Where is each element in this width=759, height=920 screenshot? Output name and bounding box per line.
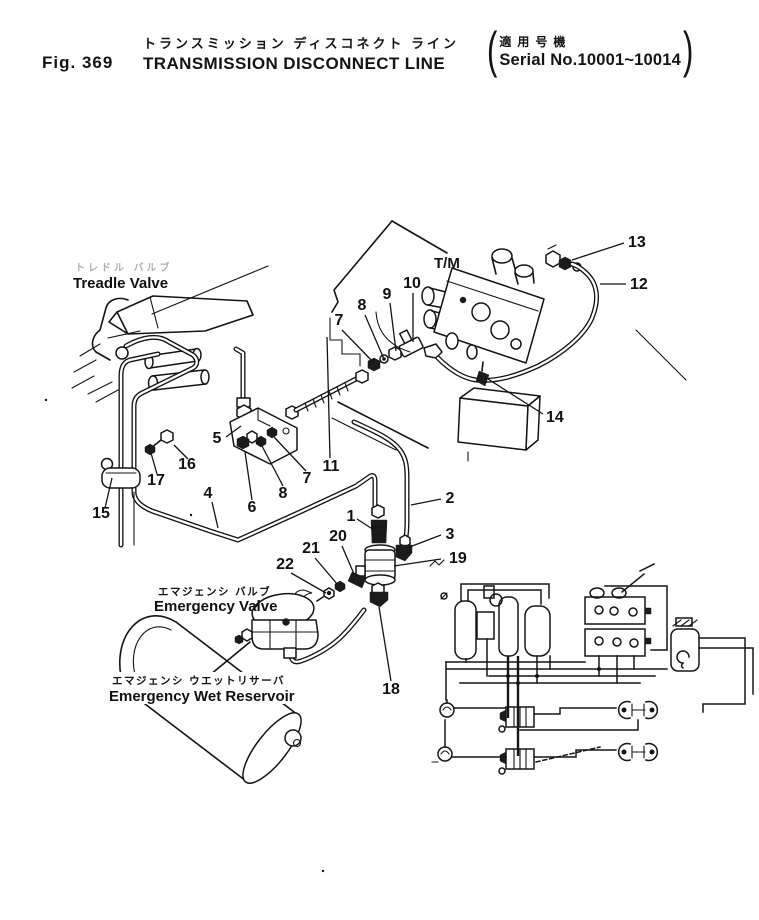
callout-1: 1 <box>347 508 356 525</box>
callout-leader-11 <box>327 337 330 458</box>
valve-19-assembly <box>317 505 412 607</box>
emergency-wet-reservoir-label-jp: エマジェンシ ウエットリサーバ <box>112 675 285 687</box>
callout-8: 8 <box>358 297 367 314</box>
callout-21: 21 <box>302 540 320 557</box>
callout-leader-3 <box>407 535 441 548</box>
tube-11-assembly <box>286 327 442 419</box>
callout-leader-7 <box>342 330 374 363</box>
callout-4: 4 <box>204 485 213 502</box>
callout-15: 15 <box>92 505 110 522</box>
treadle-valve-label: Treadle Valve <box>73 275 168 292</box>
callout-leader-13 <box>572 243 624 260</box>
callout-22: 22 <box>276 556 294 573</box>
callout-leader-20 <box>342 546 354 574</box>
callout-12: 12 <box>630 276 648 293</box>
pneumatic-schematic <box>430 560 753 774</box>
callout-leader-8 <box>365 315 384 359</box>
callout-5: 5 <box>213 430 222 447</box>
callout-leader-2 <box>411 499 441 505</box>
callout-9: 9 <box>383 286 392 303</box>
callout-8: 8 <box>279 485 288 502</box>
pipe-and-fitting-5-core <box>236 349 243 398</box>
tube-11-assembly-core <box>296 379 356 410</box>
treadle-valve-label-jp: トレドル バルブ <box>75 261 172 274</box>
callout-leader-18 <box>379 607 391 681</box>
tm-label: T/M <box>434 255 460 272</box>
callout-7: 7 <box>335 312 344 329</box>
callout-13: 13 <box>628 234 646 251</box>
callout-17: 17 <box>147 472 165 489</box>
callout-14: 14 <box>546 409 564 426</box>
callout-leader-17 <box>151 453 157 474</box>
diagram-canvas: トレドル バルブ Treadle Valve T/M エマジェンシ バルブ Em… <box>0 0 759 920</box>
callout-3: 3 <box>446 526 455 543</box>
callout-11: 11 <box>323 458 340 475</box>
callout-2: 2 <box>446 490 455 507</box>
callout-leader-4 <box>212 502 218 528</box>
emergency-valve-label: Emergency Valve <box>154 598 277 615</box>
callout-18: 18 <box>382 681 400 698</box>
parts-diagram-page: Fig. 369 トランスミッション ディスコネクト ライン TRANSMISS… <box>0 0 759 920</box>
callout-20: 20 <box>329 528 347 545</box>
callout-19: 19 <box>449 550 467 567</box>
callout-leader-21 <box>315 558 338 585</box>
callout-6: 6 <box>248 499 257 516</box>
callout-leader-22 <box>291 573 326 593</box>
emergency-wet-reservoir-label: Emergency Wet Reservoir <box>109 688 295 705</box>
callout-leader-6 <box>245 452 252 500</box>
callout-7: 7 <box>303 470 312 487</box>
callout-16: 16 <box>178 456 196 473</box>
emergency-valve-label-jp: エマジェンシ バルブ <box>158 585 271 598</box>
callout-10: 10 <box>403 275 421 292</box>
callout-labels: 1234567891011121314151617181920212278 <box>92 234 648 698</box>
